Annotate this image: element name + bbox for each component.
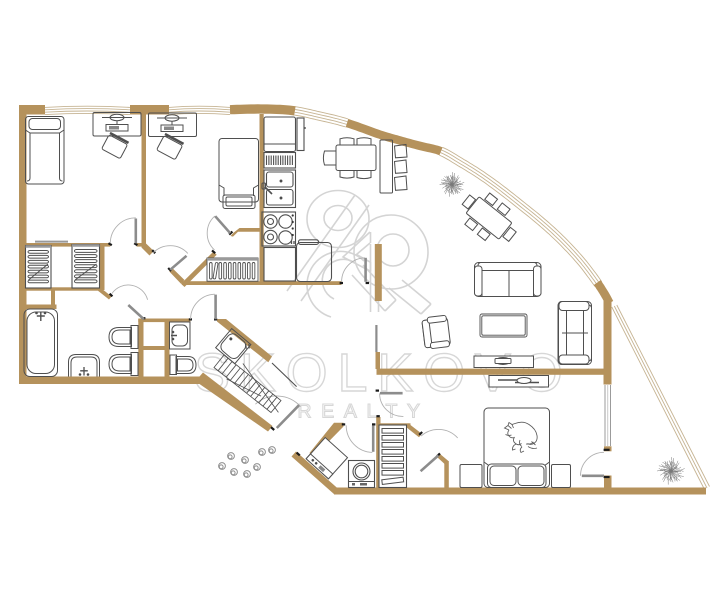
svg-text:REALTY: REALTY [298, 401, 430, 423]
